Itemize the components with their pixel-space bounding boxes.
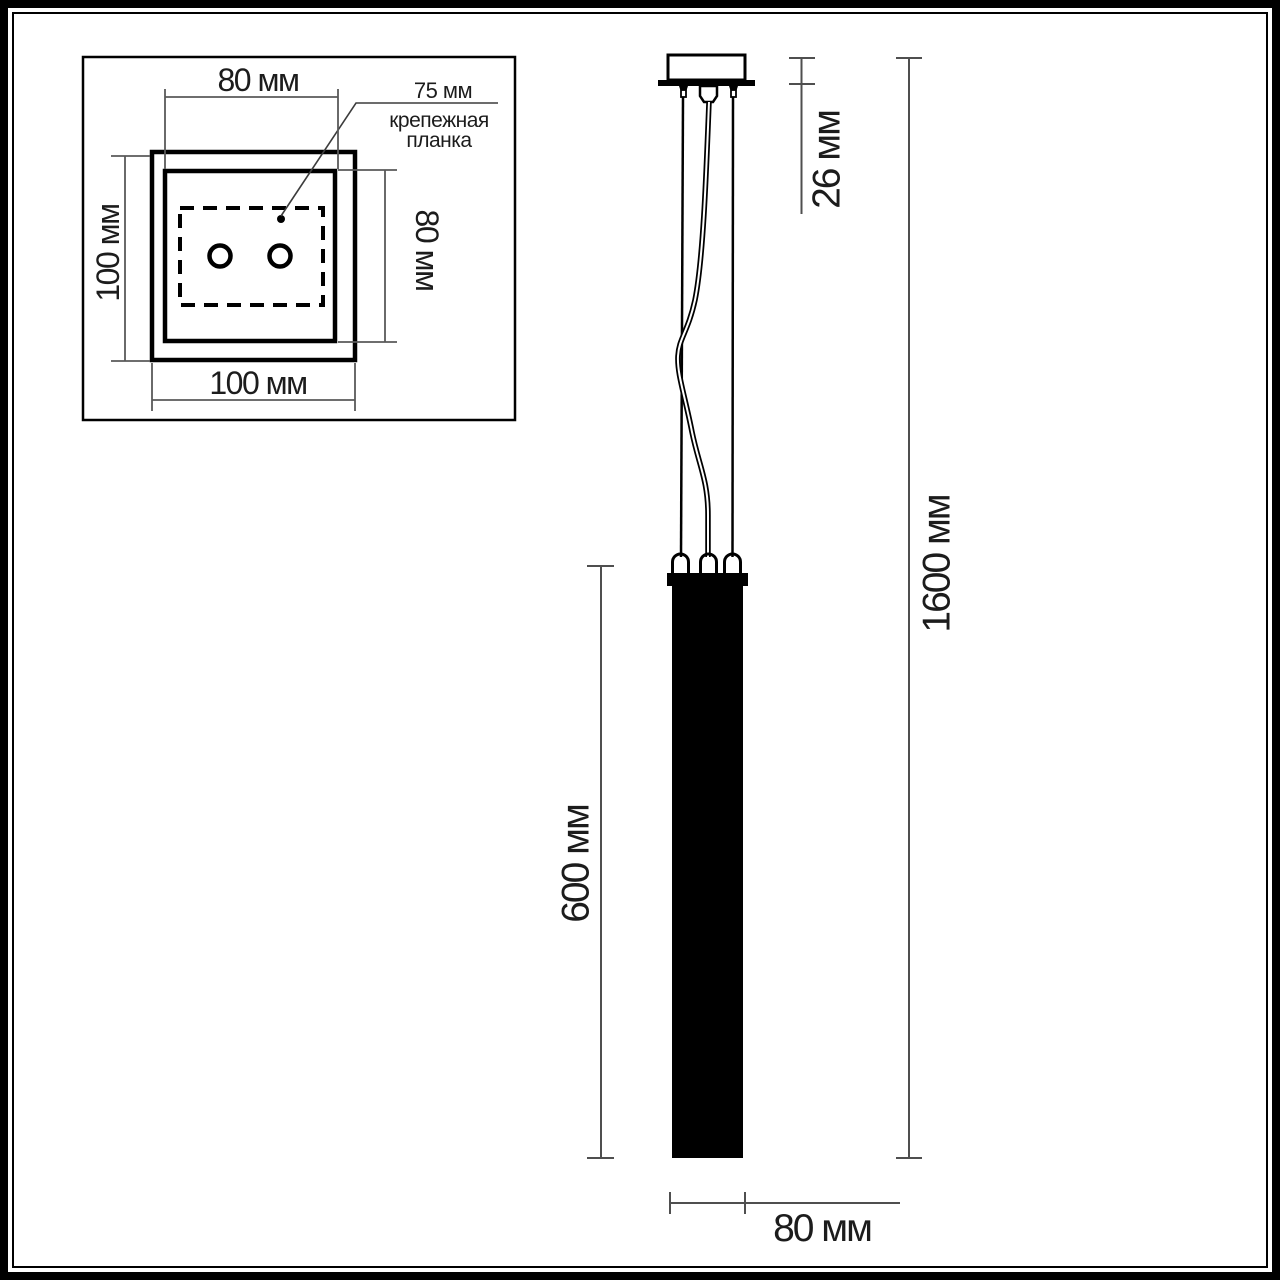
inner-frame-border [13,13,1267,1267]
mounting-bar-dashed-outline [180,208,323,305]
cable-gripper-center [701,554,717,576]
drawing-canvas: 75 мм крепежная планка 80 мм 100 мм 80 м… [0,0,1280,1280]
dimension-drawing-svg: 75 мм крепежная планка 80 мм 100 мм 80 м… [0,0,1280,1280]
canopy-stem-right [731,90,736,97]
inset-dim-bottom: 100 мм [152,363,355,411]
cable-gripper-right [725,554,741,576]
dim-canopy-height-label: 26 мм [806,111,849,209]
canopy-stem-left [681,90,686,97]
dim-total-height: 1600 мм [896,58,959,1158]
inset-dim-left: 100 мм [90,156,150,361]
front-view: 26 мм 1600 мм 600 мм 80 мм [555,55,959,1250]
dim-tube-width-label: 80 мм [773,1207,871,1250]
inset-dim-top-label: 80 мм [218,62,299,98]
outer-frame-border [4,4,1276,1276]
callout-value-label: 75 мм [414,78,472,103]
inset-dim-bottom-label: 100 мм [209,365,306,401]
dim-tube-width: 80 мм [670,1192,900,1250]
cord-connector [700,86,717,102]
mounting-hole-left [210,246,231,267]
inset-top-view: 75 мм крепежная планка 80 мм 100 мм 80 м… [83,57,515,420]
dim-total-height-label: 1600 мм [916,495,959,632]
dim-tube-length-label: 600 мм [555,805,598,923]
inset-dim-right-label: 80 мм [409,210,445,291]
dim-canopy-height: 26 мм [789,58,849,214]
tube-body [672,582,743,1158]
callout-text-line2: планка [406,129,472,152]
callout-anchor-dot [277,215,285,223]
inset-dim-left-label: 100 мм [90,204,126,301]
canopy-box [668,55,745,80]
mounting-hole-right [270,246,291,267]
canopy-inner-square [165,171,335,341]
suspension-cable-left [681,97,683,557]
cable-gripper-left [673,554,689,576]
suspension-cable-right [733,97,734,557]
dim-tube-length: 600 мм [555,566,614,1158]
